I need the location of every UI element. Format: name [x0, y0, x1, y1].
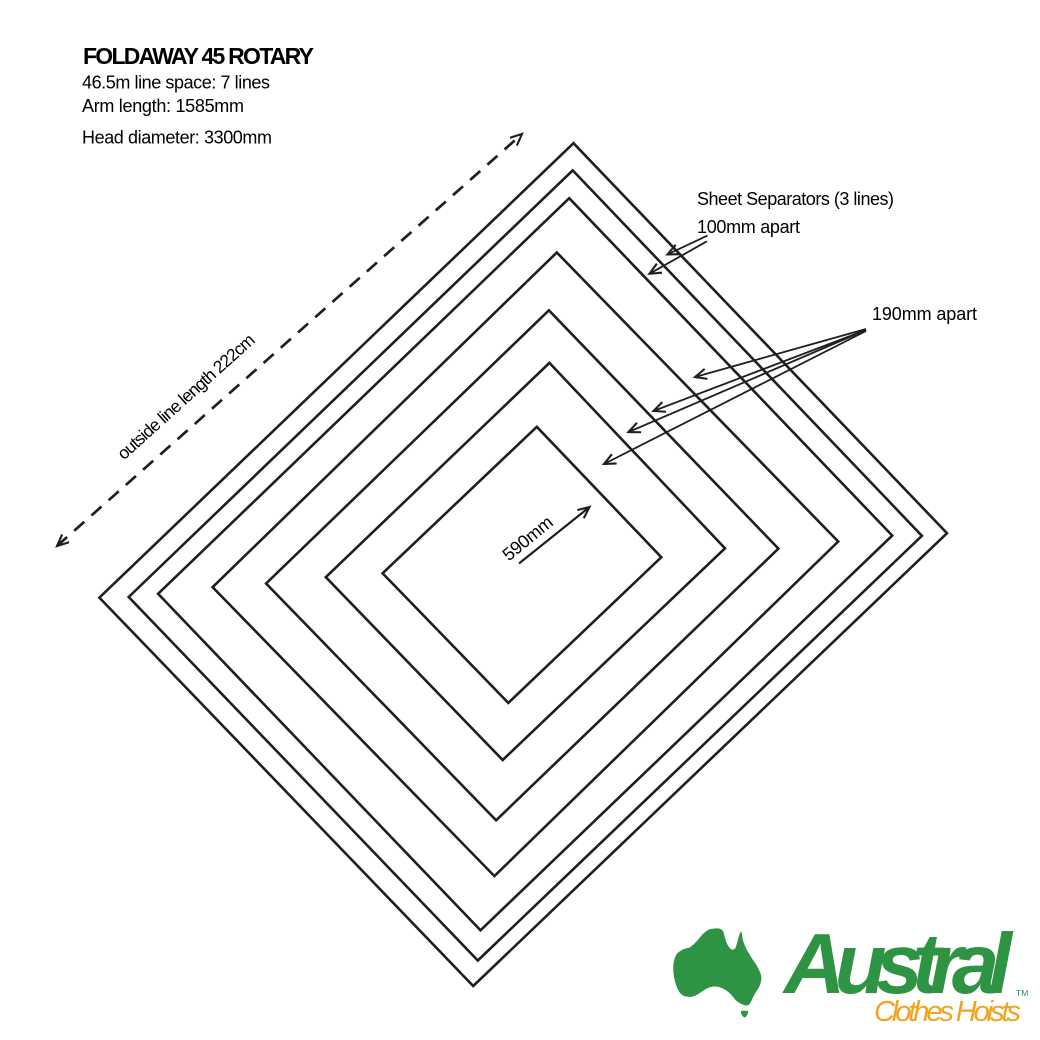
svg-text:100mm apart: 100mm apart	[697, 217, 800, 237]
svg-text:46.5m line space: 7 lines: 46.5m line space: 7 lines	[82, 73, 270, 93]
svg-text:Clothes Hoists: Clothes Hoists	[874, 996, 1021, 1028]
svg-text:Arm length: 1585mm: Arm length: 1585mm	[82, 96, 244, 116]
svg-text:Sheet Separators (3 lines): Sheet Separators (3 lines)	[697, 189, 894, 209]
svg-text:190mm apart: 190mm apart	[872, 304, 977, 324]
svg-text:Head diameter: 3300mm: Head diameter: 3300mm	[82, 128, 272, 148]
svg-text:FOLDAWAY 45 ROTARY: FOLDAWAY 45 ROTARY	[83, 43, 314, 69]
